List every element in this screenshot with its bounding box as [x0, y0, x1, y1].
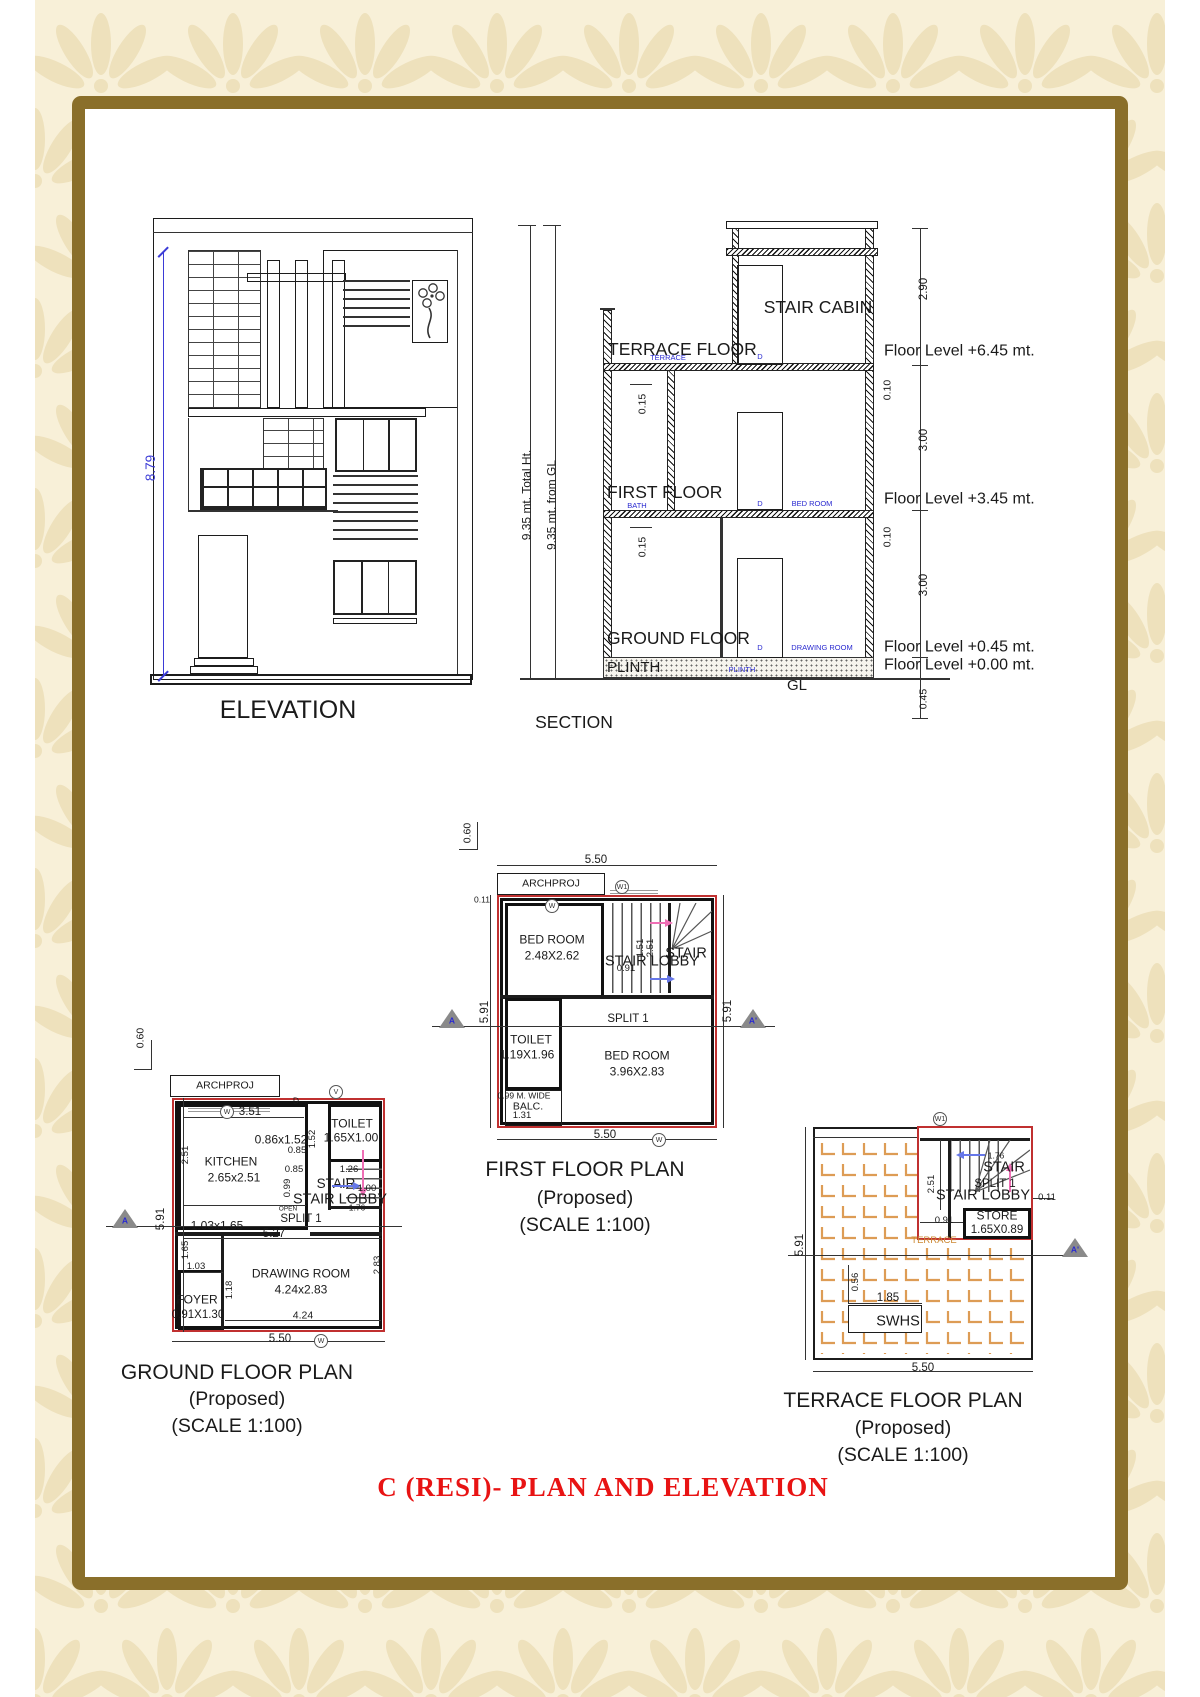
- section-marker-letter: A: [449, 1017, 455, 1026]
- wall-edge: [188, 418, 189, 510]
- sheet-caption: C (RESI)- PLAN AND ELEVATION: [377, 1473, 829, 1501]
- swhs-label: SWHS: [876, 1314, 920, 1329]
- dim-tick: [543, 225, 561, 226]
- ground-floor-plan-title: GROUND FLOOR PLAN: [121, 1362, 353, 1384]
- railing: [200, 468, 327, 510]
- first-floor-label: FIRST FLOOR: [607, 483, 722, 501]
- louver-panel: [333, 472, 418, 540]
- window-tag-w: W: [220, 1105, 234, 1119]
- slab-band: [188, 408, 426, 417]
- entrance-door: [198, 535, 248, 658]
- dim-tick: [630, 527, 652, 528]
- column: [295, 260, 308, 408]
- ground-floor-label: GROUND FLOOR: [607, 629, 750, 647]
- dim-103x165: 1.03x1.65: [191, 1220, 244, 1233]
- dim-591: 5.91: [155, 1208, 167, 1230]
- dim-010: 0.10: [882, 380, 893, 400]
- dim-tick: [912, 510, 928, 511]
- door-tag: D: [757, 353, 762, 361]
- plinth-base: [150, 674, 472, 685]
- dim-tick: [912, 365, 928, 366]
- dim-165: 1.65: [181, 1241, 191, 1260]
- room-size: 1.65X1.00: [324, 1132, 379, 1145]
- proposed-label: (Proposed): [855, 1418, 951, 1438]
- dim-118: 1.18: [225, 1281, 235, 1300]
- room-size: 1.65X0.89: [971, 1224, 1023, 1236]
- dim-bracket: [477, 822, 478, 850]
- door-tag: D: [757, 500, 762, 508]
- wall: [310, 1232, 382, 1236]
- dim-176: 1.76: [349, 1204, 366, 1213]
- sill-band: [333, 618, 417, 624]
- stair-arrow-blue: [650, 978, 668, 980]
- dim-251: 2.51: [927, 1175, 937, 1194]
- split-label: SPLIT 1: [280, 1213, 321, 1225]
- stair-label: STAIR: [983, 1160, 1025, 1175]
- dim-300: 3.00: [918, 574, 930, 596]
- dim-091: 0.91: [617, 964, 636, 974]
- plinth-tag: PLINTH: [729, 666, 756, 674]
- dim-bracket: [151, 1040, 152, 1070]
- dim-550-top: 5.50: [585, 854, 607, 866]
- dim-251: 2.51: [646, 939, 656, 958]
- dim-015: 0.15: [637, 537, 648, 557]
- sheet: 8.79 ELEVATION STAIR CABIN TERRACE FLOOR…: [0, 0, 1200, 1697]
- dim-056: 0.56: [851, 1273, 861, 1292]
- floor-level-045: Floor Level +0.45 mt.: [884, 640, 1035, 657]
- section-marker-letter: A': [1071, 1246, 1079, 1255]
- stair-arrow-blue: [963, 1154, 985, 1156]
- stair-label: STAIR: [317, 1177, 356, 1191]
- parapet-cap: [600, 308, 615, 310]
- dim-085: 0.85: [285, 1165, 304, 1175]
- wall: [865, 228, 874, 678]
- dim-line: [163, 252, 164, 676]
- dim-tick: [912, 678, 928, 679]
- dim-351: 3.51: [239, 1106, 261, 1118]
- door: [737, 412, 783, 510]
- from-gl-dim: 9.35 mt. from GL: [546, 460, 559, 550]
- archproj-label: ARCHPROJ: [196, 1080, 254, 1091]
- dim-152: 1.52: [308, 1130, 318, 1149]
- proposed-label: (Proposed): [189, 1389, 285, 1409]
- room-label: KITCHEN: [205, 1156, 258, 1169]
- dim-060: 0.60: [135, 1028, 146, 1048]
- stair-arrow-pink: [650, 922, 666, 924]
- slab: [603, 510, 874, 518]
- window: [333, 560, 417, 615]
- total-height-dim: 9.35 mt. Total Ht.: [521, 450, 534, 541]
- door-tag: D: [757, 644, 762, 652]
- section-marker-letter: A: [122, 1217, 128, 1226]
- room-label: FOYER: [176, 1294, 217, 1307]
- room-label: DRAWING ROOM: [252, 1268, 350, 1281]
- floor-level-645: Floor Level +6.45 mt.: [884, 344, 1035, 361]
- dim-085: 0.85: [288, 1146, 307, 1156]
- louver-panel: [343, 280, 410, 327]
- stair-lobby-label: STAIR LOBBY: [936, 1188, 1030, 1203]
- elevation-title: ELEVATION: [220, 697, 357, 723]
- column: [267, 260, 280, 408]
- dim-283: 2.83: [373, 1256, 383, 1275]
- section-cut-line: [788, 1255, 1085, 1256]
- room-size: 1.19X1.96: [500, 1049, 555, 1062]
- brick-patch: [263, 418, 324, 470]
- dim-550: 5.50: [912, 1362, 934, 1374]
- dim-015: 0.15: [637, 394, 648, 414]
- drawingroom-tag: DRAWING ROOM: [791, 644, 852, 652]
- dim-290: 2.90: [918, 278, 930, 300]
- first-floor-plan-title: FIRST FLOOR PLAN: [485, 1159, 684, 1181]
- room-size: 2.65x2.51: [208, 1172, 261, 1185]
- dim-tick: [630, 384, 652, 385]
- dim-591: 5.91: [794, 1234, 806, 1256]
- step: [194, 658, 254, 666]
- balcony-dim: 1.31: [513, 1111, 532, 1121]
- stair-arrow-blue: [332, 1185, 354, 1187]
- floor-level-000: Floor Level +0.00 mt.: [884, 658, 1035, 675]
- dim-tick: [912, 718, 928, 719]
- room-label: TOILET: [510, 1034, 552, 1047]
- section-cut-line: [106, 1226, 402, 1227]
- door-tag: D: [293, 1097, 299, 1106]
- dim-591-left: 5.91: [479, 1001, 491, 1023]
- floor-line: [188, 510, 338, 512]
- terrace-floor-plan-title: TERRACE FLOOR PLAN: [783, 1390, 1022, 1412]
- step: [190, 666, 258, 674]
- elevation-height-dim: 8.79: [144, 455, 158, 481]
- dim-010: 0.10: [882, 527, 893, 547]
- dim-line: [183, 1272, 223, 1273]
- terrace-tag: TERRACE: [650, 354, 686, 362]
- dim-591-right: 5.91: [722, 1000, 734, 1022]
- bath-tag: BATH: [627, 502, 646, 510]
- dim-011: 0.11: [1038, 1193, 1056, 1203]
- dim-300: 3.00: [918, 429, 930, 451]
- floor-level-345: Floor Level +3.45 mt.: [884, 492, 1035, 509]
- terrace-tag: TERRACE: [911, 1236, 956, 1246]
- dim-527: 5.27: [263, 1228, 285, 1240]
- parapet-line: [153, 232, 473, 233]
- split-label: SPLIT 1: [607, 1013, 648, 1025]
- archproj-label: ARCHPROJ: [522, 878, 580, 889]
- dim-091: 0.91: [935, 1216, 954, 1226]
- room-size: 2.48X2.62: [525, 950, 580, 963]
- window-tag-w1: W1: [615, 880, 629, 894]
- window-tag-w1: W1: [933, 1112, 947, 1126]
- dim-126: 1.26: [340, 1165, 359, 1175]
- room-label: BED ROOM: [604, 1050, 669, 1063]
- dim-045: 0.45: [918, 689, 929, 709]
- stair-cabin-label: STAIR CABIN: [764, 298, 873, 316]
- dim-bracket: [459, 849, 477, 850]
- dim-line: [555, 225, 556, 678]
- window-mark: [610, 893, 658, 894]
- dim-550-bottom: 5.50: [594, 1129, 616, 1141]
- window-tag-w: W: [545, 899, 559, 913]
- gl-label: GL: [787, 678, 807, 694]
- dim-185: 1.85: [877, 1292, 899, 1304]
- stair-lobby-label: STAIR LOBBY: [293, 1192, 387, 1207]
- ground-line: [520, 678, 950, 680]
- dim-424: 4.24: [293, 1310, 313, 1321]
- dim-550: 5.50: [269, 1333, 291, 1345]
- dim-060: 0.60: [462, 823, 473, 843]
- balcony-note: 0.99 M. WIDE: [498, 1092, 551, 1101]
- flower-motif: [412, 280, 448, 343]
- section-title: SECTION: [535, 713, 613, 731]
- scale-label: (SCALE 1:100): [519, 1215, 650, 1235]
- dim-bracket: [134, 1069, 151, 1070]
- room-size: 4.24x2.83: [275, 1284, 328, 1297]
- dim-099: 0.99: [283, 1179, 293, 1198]
- window: [335, 418, 417, 472]
- room-label: BED ROOM: [519, 934, 584, 947]
- bedroom-tag: BED ROOM: [792, 500, 833, 508]
- section-marker-letter: A': [749, 1017, 757, 1026]
- room-label: TOILET: [331, 1118, 373, 1131]
- dim-251: 2.51: [181, 1146, 191, 1165]
- stair-winders: [672, 903, 712, 949]
- vent-tag-v: V: [329, 1085, 343, 1099]
- window-tag-w: W: [652, 1133, 666, 1147]
- room-size: 3.96X2.83: [610, 1066, 665, 1079]
- dim-103: 1.03: [187, 1262, 206, 1272]
- dim-line: [848, 1265, 849, 1303]
- window-tag-w: W: [314, 1334, 328, 1348]
- wall-edge: [457, 250, 458, 676]
- scale-label: (SCALE 1:100): [837, 1445, 968, 1465]
- proposed-label: (Proposed): [537, 1188, 633, 1208]
- room-label: STORE: [976, 1210, 1017, 1223]
- dim-tick: [518, 225, 536, 226]
- room-size: 0.91X1.30: [172, 1309, 224, 1321]
- slab: [726, 248, 878, 256]
- dim-tick: [912, 228, 928, 229]
- dim-011: 0.11: [474, 896, 490, 905]
- roof-slab: [726, 221, 878, 229]
- scale-label: (SCALE 1:100): [171, 1416, 302, 1436]
- plinth-label: PLINTH: [607, 660, 660, 676]
